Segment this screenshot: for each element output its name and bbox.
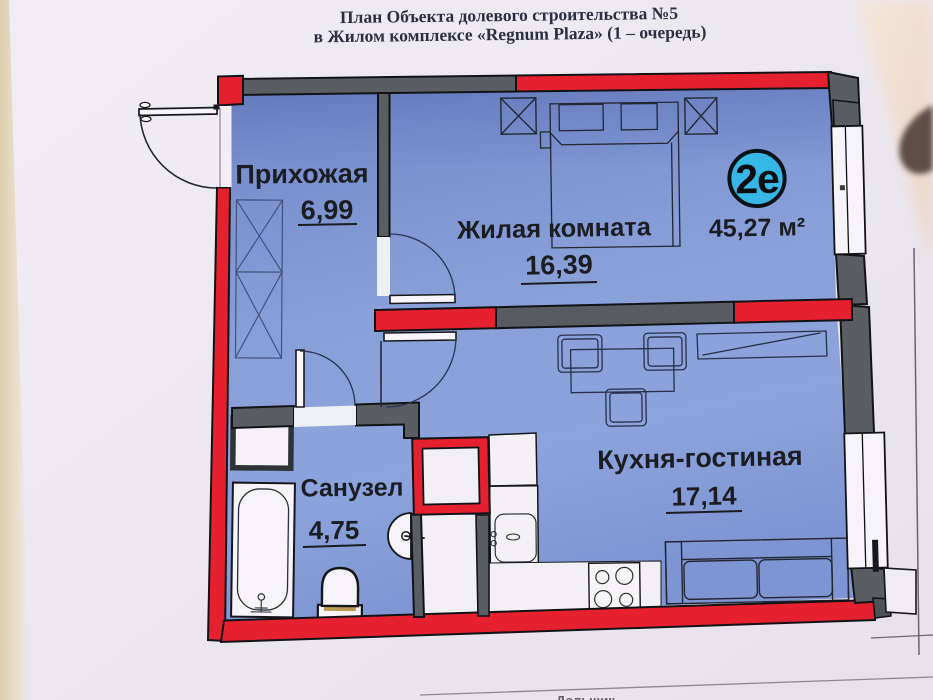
svg-text:4,75: 4,75: [309, 515, 360, 545]
svg-text:45,27 м²: 45,27 м²: [709, 213, 806, 243]
svg-text:Санузел: Санузел: [300, 474, 403, 503]
svg-text:Прихожая: Прихожая: [235, 158, 368, 189]
svg-text:2е: 2е: [735, 156, 780, 203]
svg-text:6,99: 6,99: [301, 195, 354, 225]
svg-text:16,39: 16,39: [525, 249, 593, 280]
svg-text:Кухня-гостиная: Кухня-гостиная: [597, 441, 803, 475]
svg-text:Дольщик: Дольщик: [556, 693, 615, 700]
svg-text:17,14: 17,14: [671, 480, 737, 511]
svg-text:Жилая комната: Жилая комната: [456, 213, 652, 244]
